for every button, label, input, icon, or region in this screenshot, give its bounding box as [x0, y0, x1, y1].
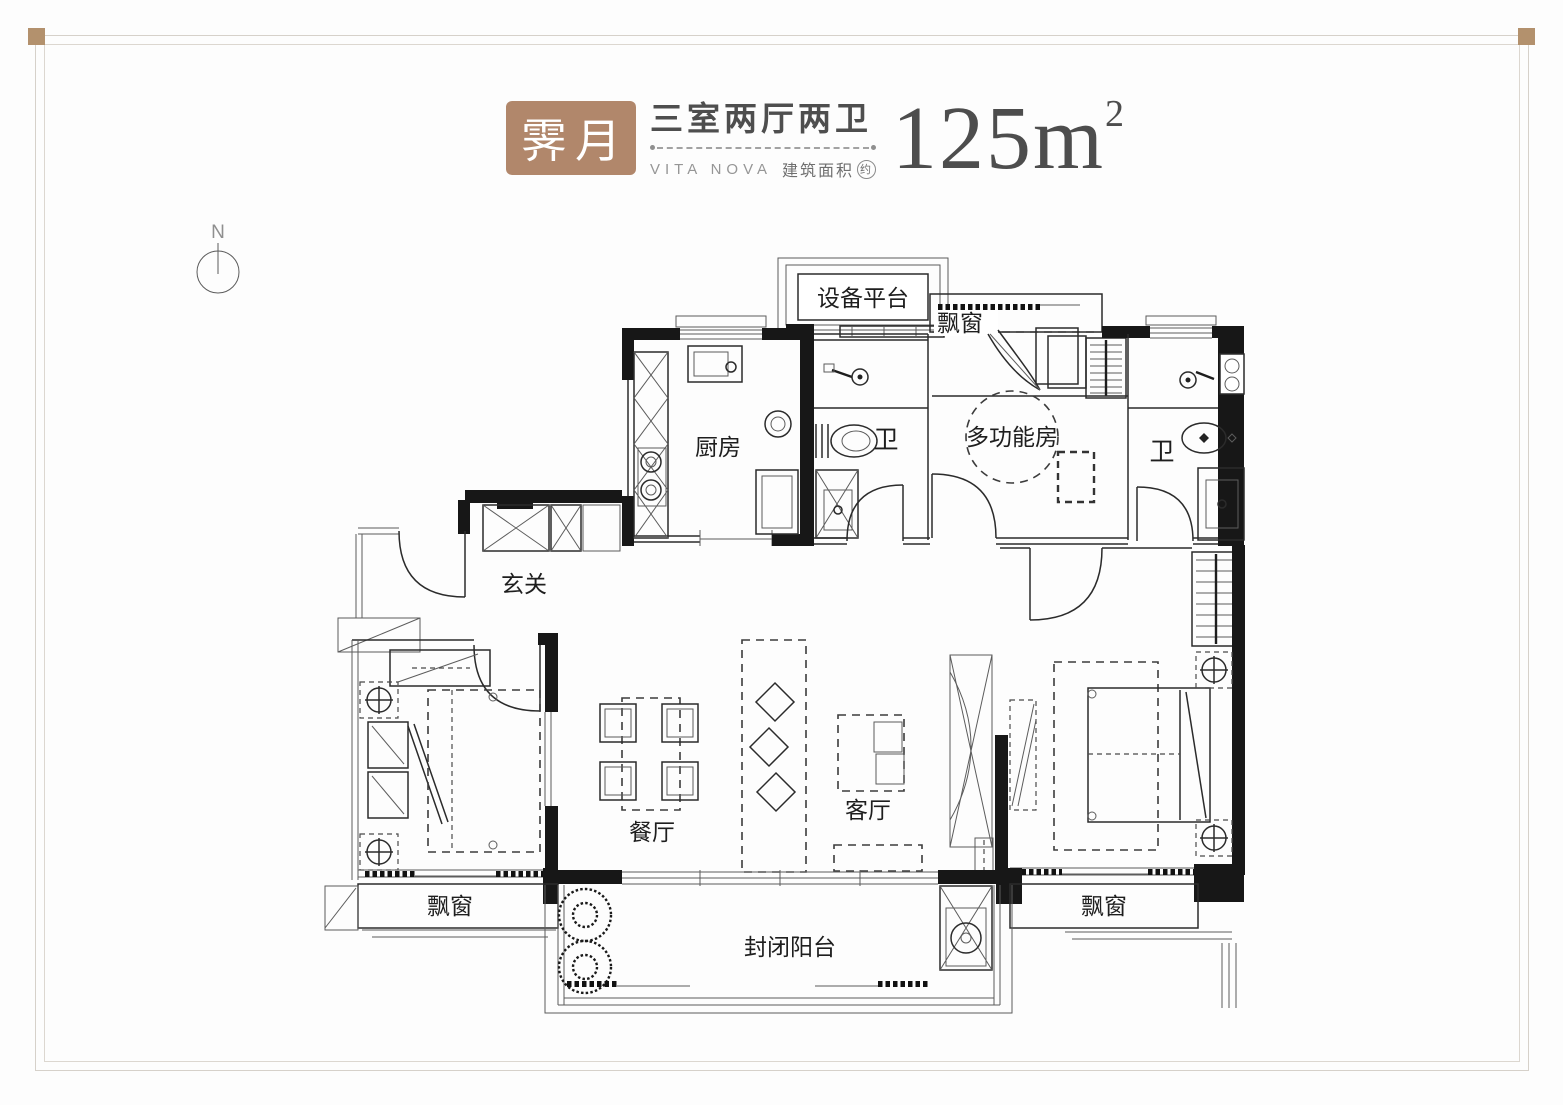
north-compass-icon: N [197, 222, 239, 293]
room-label-kitchen: 厨房 [695, 434, 741, 460]
balcony: 封闭阳台 [545, 885, 1012, 1013]
room-label-bay-window-left: 飘窗 [427, 893, 473, 919]
washing-machine-icon [940, 886, 992, 970]
bathroom-1: 卫 [814, 334, 930, 544]
room-label-bath2: 卫 [1149, 438, 1174, 466]
hallway-right [1000, 545, 1245, 875]
right-bedroom-door-arc [1030, 548, 1102, 620]
room-label-bay-window-right: 飘窗 [1081, 893, 1127, 919]
equipment-platform: 设备平台 [778, 258, 948, 338]
bathroom-2: 卫 [1102, 316, 1244, 546]
multi-room-door-arc [932, 474, 996, 538]
room-label-balcony: 封闭阳台 [744, 934, 836, 960]
bay-window-top: 飘窗 [930, 294, 1102, 336]
room-label-bath1: 卫 [873, 426, 898, 454]
room-label-equipment-platform: 设备平台 [817, 285, 909, 311]
dining-room: 餐厅 [558, 698, 698, 884]
bathroom-2-door-arc [1137, 487, 1193, 541]
bay-window-right: 飘窗 [1010, 884, 1236, 1008]
bay-window-left: 飘窗 [325, 884, 558, 937]
left-bedroom [352, 633, 558, 904]
living-room: 客厅 [622, 640, 1008, 886]
multi-function-room: 多功能房 [932, 328, 1128, 544]
plant-icon [559, 889, 611, 993]
room-label-bay-window-top: 飘窗 [937, 310, 983, 336]
floor-plan-page: 霁月 三室两厅两卫 VITA NOVA 建筑面积 约 125m 2 N [0, 0, 1563, 1105]
room-label-multi-room: 多功能房 [966, 424, 1058, 450]
bathroom-1-door-arc [847, 485, 903, 541]
entry-door-arc [399, 531, 465, 597]
room-label-living: 客厅 [845, 797, 891, 823]
living-bedroom-door [950, 655, 992, 847]
right-bedroom [996, 652, 1244, 904]
kitchen: 厨房 [622, 316, 814, 546]
foyer: 玄关 [338, 490, 622, 652]
floor-plan-drawing: N 设备平台 飘窗 [0, 0, 1563, 1105]
left-bedroom-door-arc [474, 645, 540, 711]
room-label-foyer: 玄关 [501, 571, 547, 597]
room-label-dining: 餐厅 [629, 819, 675, 845]
compass-n-label: N [211, 222, 225, 243]
